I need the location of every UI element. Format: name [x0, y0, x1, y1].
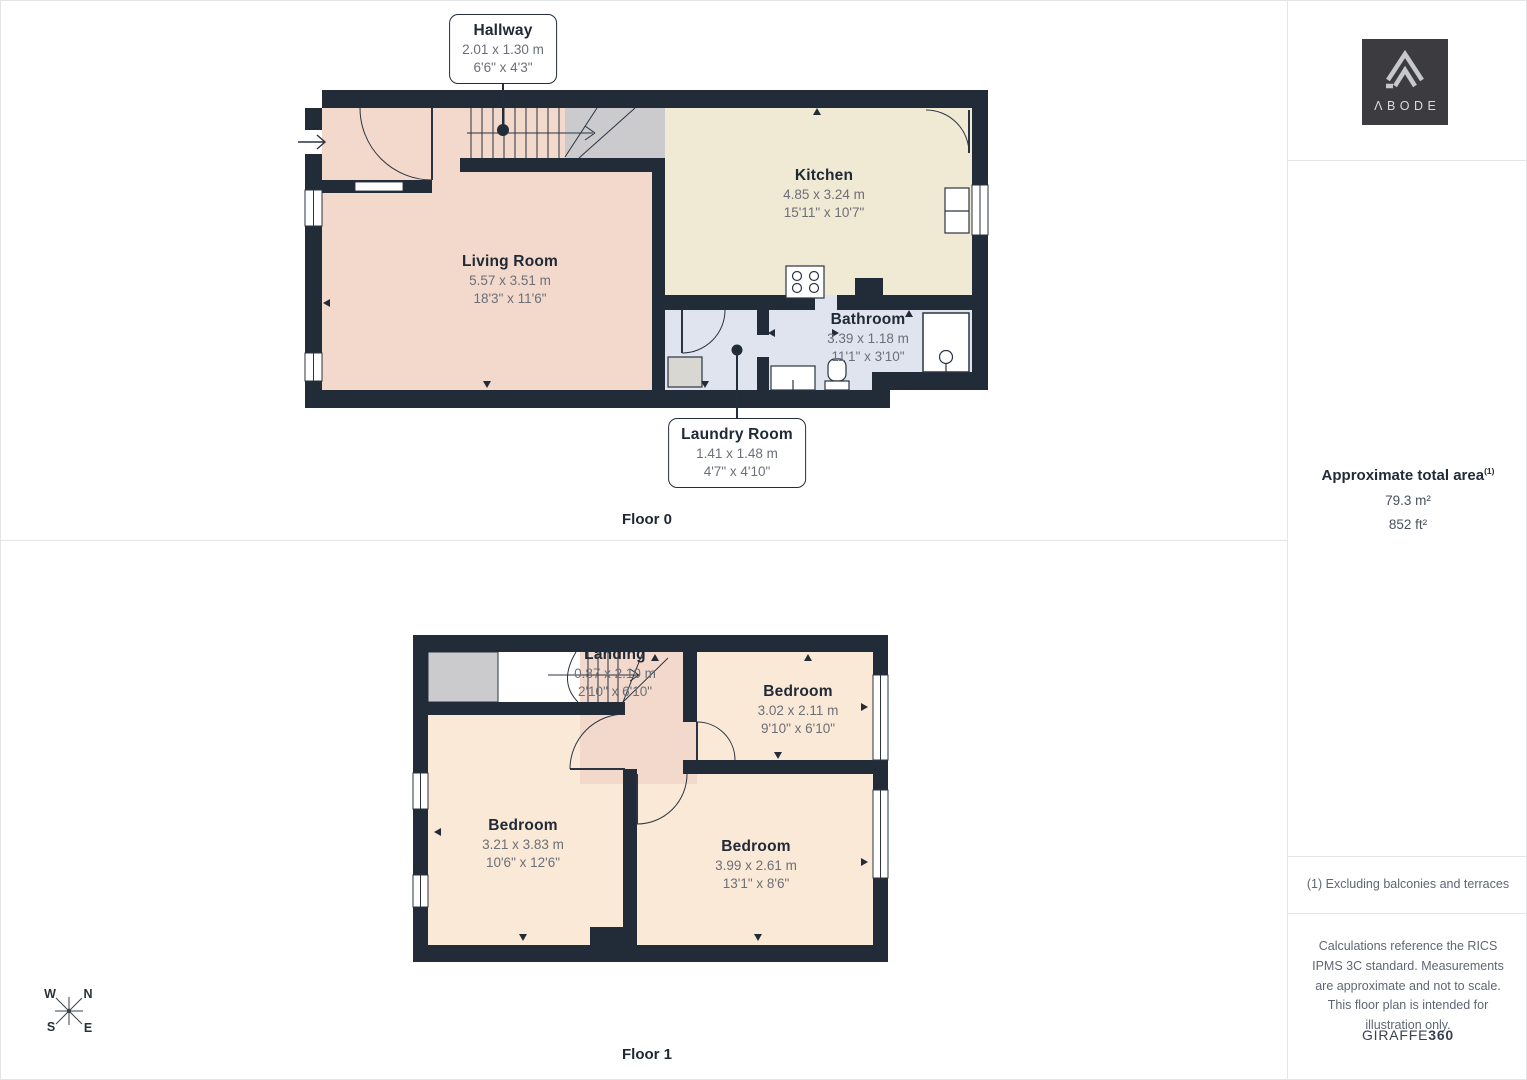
floor1-caption: Floor 1: [622, 1046, 672, 1063]
compass-east: E: [84, 1021, 92, 1035]
room-label-landing: Landing 0.87 x 2.10 m 2'10" x 6'10": [574, 645, 656, 701]
washing-machine: [668, 357, 702, 387]
room-label-bedroom-left: Bedroom 3.21 x 3.83 m 10'6" x 12'6": [482, 816, 564, 872]
room-label-kitchen: Kitchen 4.85 x 3.24 m 15'11" x 10'7": [783, 166, 865, 222]
abode-logo-text: ΛBODE: [1362, 99, 1448, 113]
compass-north: N: [83, 987, 92, 1001]
area-footnote-marker: (1): [1484, 466, 1494, 476]
callout-laundry-room: Laundry Room 1.41 x 1.48 m 4'7" x 4'10": [668, 418, 806, 488]
abode-logo: ΛBODE: [1362, 39, 1448, 125]
callout-connector-hallway: [502, 82, 504, 131]
sidebar-divider: [1288, 913, 1527, 914]
disclaimer-text: Calculations reference the RICS IPMS 3C …: [1308, 937, 1508, 1036]
sidebar-divider: [1288, 160, 1527, 161]
callout-hallway: Hallway 2.01 x 1.30 m 6'6" x 4'3": [449, 14, 557, 84]
giraffe360-credit: GIRAFFE360: [1288, 1027, 1527, 1043]
toilet-tank: [825, 381, 849, 390]
total-area-block: Approximate total area(1) 79.3 m² 852 ft…: [1288, 466, 1527, 532]
area-footnote: (1) Excluding balconies and terraces: [1288, 877, 1527, 891]
section-divider: [0, 540, 1287, 541]
floor0-caption: Floor 0: [622, 511, 672, 528]
total-area-metric: 79.3 m²: [1288, 493, 1527, 508]
sidebar: ΛBODE Approximate total area(1) 79.3 m² …: [1287, 0, 1527, 1080]
callout-connector-laundry: [736, 352, 738, 418]
abode-logo-icon: [1362, 39, 1448, 97]
room-label-bedroom-bottom-right: Bedroom 3.99 x 2.61 m 13'1" x 8'6": [715, 837, 797, 893]
total-area-imperial: 852 ft²: [1288, 517, 1527, 532]
room-label-living-room: Living Room 5.57 x 3.51 m 18'3" x 11'6": [462, 252, 558, 308]
total-area-title: Approximate total area(1): [1288, 466, 1527, 484]
floorplan-page: Living Room 5.57 x 3.51 m 18'3" x 11'6" …: [0, 0, 1527, 1080]
sidebar-divider: [1288, 856, 1527, 857]
stove: [786, 266, 824, 298]
room-label-bathroom: Bathroom 3.39 x 1.18 m 11'1" x 3'10": [827, 310, 909, 366]
compass-south: S: [47, 1020, 55, 1034]
room-label-bedroom-top-right: Bedroom 3.02 x 2.11 m 9'10" x 6'10": [758, 682, 839, 738]
compass-west: W: [44, 987, 56, 1001]
